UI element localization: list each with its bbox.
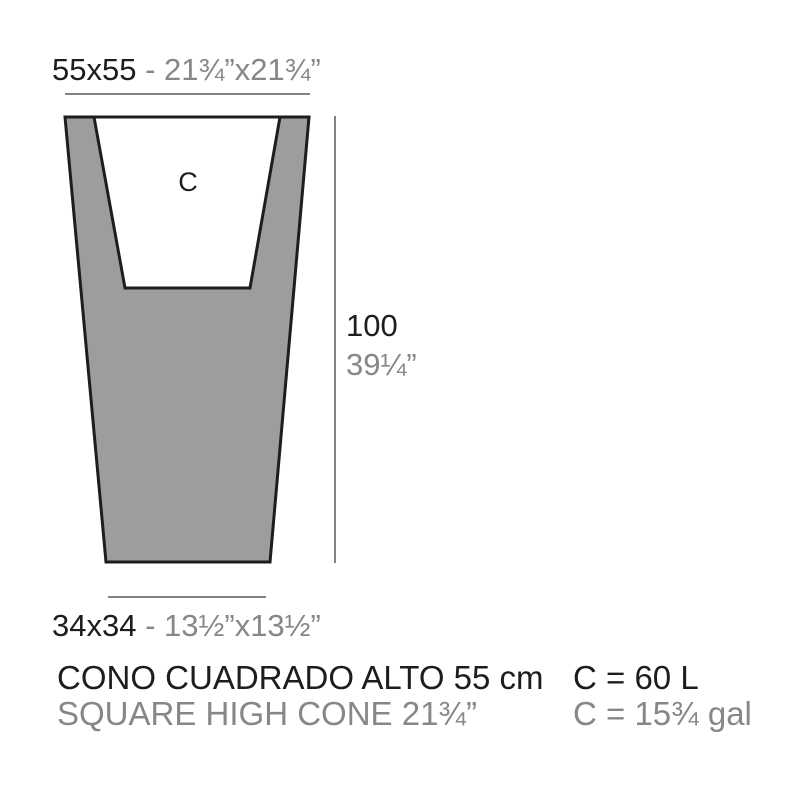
spec-sheet: 55x55 - 21¾”x21¾” C 100 39¼” 34x34 - 13½… [0, 0, 800, 800]
product-title-en: SQUARE HIGH CONE 21¾” [57, 696, 477, 732]
base-dimension-metric: 34x34 [52, 608, 136, 643]
height-dimension-label: 100 39¼” [346, 306, 417, 384]
base-dimension-imperial: 13½”x13½” [164, 608, 321, 643]
base-dimension-label: 34x34 - 13½”x13½” [52, 610, 321, 641]
capacity-liters: C = 60 L [573, 660, 699, 696]
dimension-separator: - [136, 608, 164, 643]
capacity-gallons: C = 15¾ gal [573, 696, 752, 732]
product-title-es: CONO CUADRADO ALTO 55 cm [57, 660, 544, 696]
height-dimension-imperial: 39¼” [346, 345, 417, 384]
height-dimension-metric: 100 [346, 306, 417, 345]
top-dimension-imperial: 21¾”x21¾” [164, 52, 321, 87]
planter-cavity [94, 117, 280, 288]
cavity-capacity-label: C [170, 169, 206, 196]
top-dimension-metric: 55x55 [52, 52, 136, 87]
top-dimension-label: 55x55 - 21¾”x21¾” [52, 54, 321, 85]
dimension-separator: - [136, 52, 164, 87]
